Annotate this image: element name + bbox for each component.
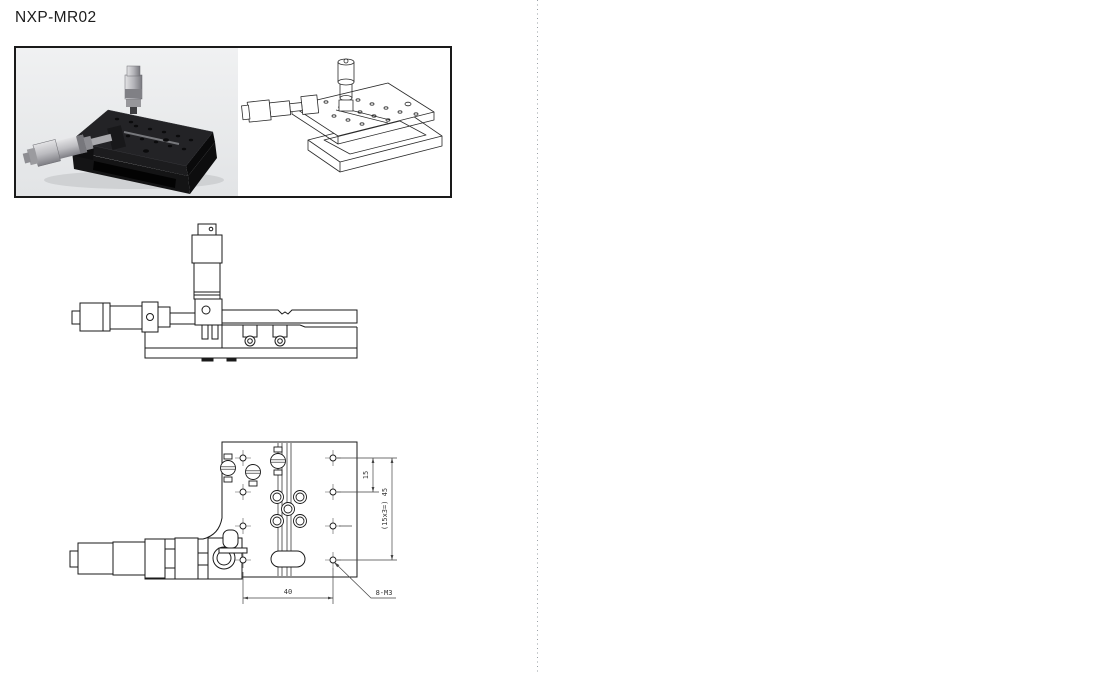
isometric-line-art — [238, 48, 450, 196]
iso-vertical-micrometer — [338, 59, 354, 111]
side-rail — [222, 310, 357, 348]
product-photo-art — [16, 48, 238, 196]
side-base — [145, 348, 357, 361]
dim-15-label: 15 — [362, 471, 370, 479]
dim-40-label: 40 — [284, 588, 292, 596]
product-isometric-drawing — [238, 48, 450, 196]
side-horizontal-micrometer — [72, 302, 196, 348]
page-column-separator — [537, 0, 538, 675]
product-photo — [16, 48, 238, 196]
side-vertical-micrometer — [192, 224, 222, 339]
vertical-micrometer-photo — [125, 66, 142, 114]
side-carriage-screws — [243, 325, 287, 346]
product-title: NXP-MR02 — [15, 9, 97, 27]
iso-horizontal-micrometer — [241, 95, 319, 123]
hole-spec-label: 8-M3 — [376, 589, 393, 597]
side-view-drawing — [60, 215, 380, 370]
top-horizontal-micrometer — [70, 538, 242, 579]
dim-45-label: (15x3=) 45 — [381, 488, 389, 530]
product-image-frame — [14, 46, 452, 198]
top-view-drawing: 15 (15x3=) 45 40 8-M3 — [60, 430, 420, 615]
